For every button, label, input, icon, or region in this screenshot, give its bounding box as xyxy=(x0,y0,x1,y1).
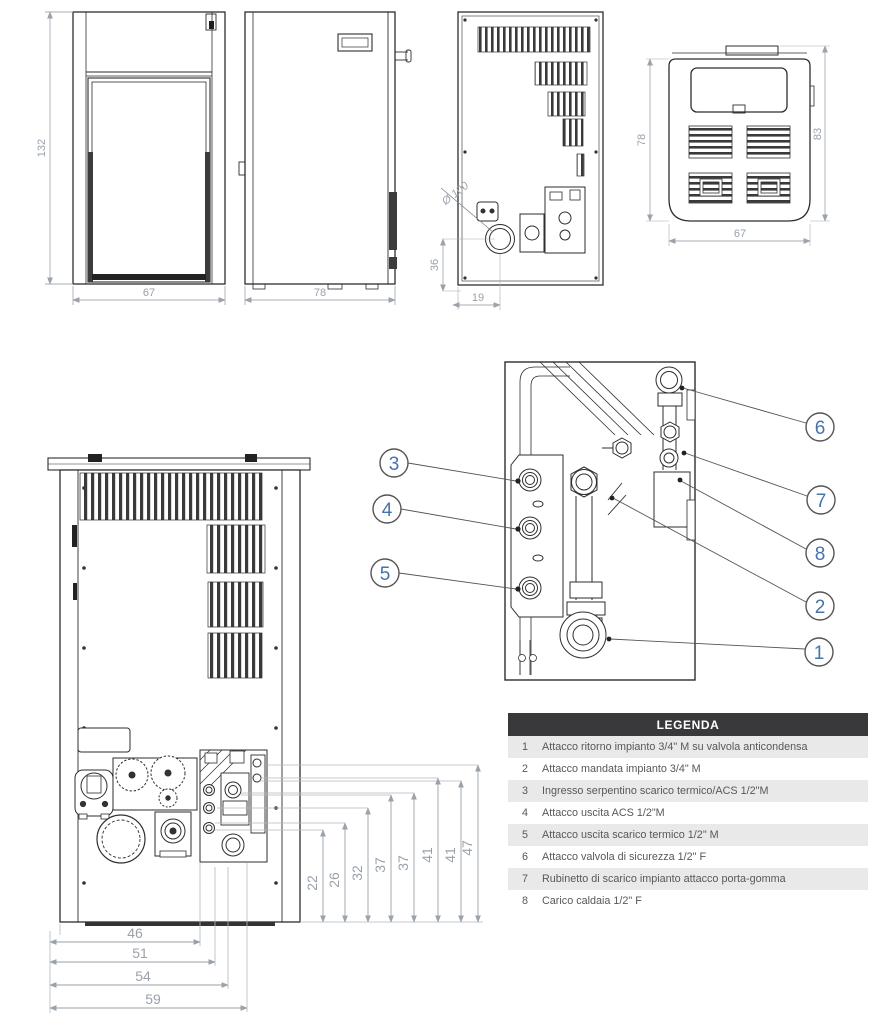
svg-text:51: 51 xyxy=(132,945,148,961)
svg-text:1: 1 xyxy=(814,643,825,664)
legend-row-4: 4 Attacco uscita ACS 1/2"M xyxy=(508,802,868,824)
legend-item-number: 3 xyxy=(508,784,542,798)
vertical-dimensions xyxy=(323,765,478,922)
auger-motor xyxy=(155,812,191,857)
top-view: 78 83 67 xyxy=(640,26,873,271)
callout-7: 7 xyxy=(682,451,835,514)
svg-text:26: 26 xyxy=(326,872,342,888)
front-height-dimension xyxy=(45,12,73,284)
vertical-dimension-labels: 22 26 32 37 37 41 41 47 xyxy=(304,840,475,891)
valve-assembly xyxy=(200,750,267,862)
legend-row-5: 5 Attacco uscita scarico termico 1/2" M xyxy=(508,824,868,846)
svg-text:32: 32 xyxy=(349,865,365,881)
rear-dimension-view: 22 26 32 37 37 41 41 47 xyxy=(35,443,485,1024)
legend-title: LEGENDA xyxy=(508,713,868,736)
rear-dimension-drawing: 22 26 32 37 37 41 41 47 xyxy=(35,443,485,1024)
svg-text:46: 46 xyxy=(127,925,143,941)
svg-text:37: 37 xyxy=(395,855,411,871)
back-view-drawing: Ø 100 36 19 xyxy=(425,2,620,320)
front-width-label: 67 xyxy=(143,287,155,299)
legend-row-2: 2 Attacco mandata impianto 3/4" M xyxy=(508,758,868,780)
svg-text:7: 7 xyxy=(816,491,827,512)
side-view-drawing: 78 xyxy=(228,2,413,320)
smoke-outlet xyxy=(97,815,145,863)
legend-item-text: Attacco mandata impianto 3/4" M xyxy=(542,762,860,776)
svg-text:2: 2 xyxy=(815,597,826,618)
legend-item-number: 6 xyxy=(508,850,542,864)
back-view: Ø 100 36 19 xyxy=(425,2,620,320)
svg-text:37: 37 xyxy=(372,857,388,873)
air-intake-pipe xyxy=(395,50,411,62)
side-depth-label: 78 xyxy=(314,287,326,299)
top-depth-dimension xyxy=(646,59,669,221)
legend-item-number: 7 xyxy=(508,872,542,886)
svg-text:22: 22 xyxy=(304,875,320,891)
technical-drawing-page: 132 67 xyxy=(0,0,873,1024)
legend-item-text: Carico caldaia 1/2" F xyxy=(542,894,860,908)
terminal-box xyxy=(477,202,498,221)
front-height-label: 132 xyxy=(36,139,48,157)
legend-table: LEGENDA 1 Attacco ritorno impianto 3/4" … xyxy=(508,713,868,912)
svg-text:41: 41 xyxy=(442,847,458,863)
legend-row-8: 8 Carico caldaia 1/2" F xyxy=(508,890,868,912)
top-view-drawing: 78 83 67 xyxy=(640,26,873,271)
legend-item-text: Rubinetto di scarico impianto attacco po… xyxy=(542,872,860,886)
legend-row-7: 7 Rubinetto di scarico impianto attacco … xyxy=(508,868,868,890)
top-total-depth-label: 83 xyxy=(812,128,824,140)
legend-item-text: Attacco valvola di sicurezza 1/2" F xyxy=(542,850,860,864)
callout-6: 6 xyxy=(680,386,834,441)
rear-protrusion xyxy=(726,46,778,55)
svg-text:59: 59 xyxy=(145,991,161,1007)
svg-text:41: 41 xyxy=(419,847,435,863)
legend-row-1: 1 Attacco ritorno impianto 3/4" M su val… xyxy=(508,736,868,758)
circulation-pump xyxy=(75,770,113,819)
legend-item-text: Attacco uscita scarico termico 1/2" M xyxy=(542,828,860,842)
front-view-drawing: 132 67 xyxy=(30,2,240,320)
legend-item-text: Attacco ritorno impianto 3/4" M su valvo… xyxy=(542,740,860,754)
legend-row-6: 6 Attacco valvola di sicurezza 1/2" F xyxy=(508,846,868,868)
top-depth-label: 78 xyxy=(636,134,648,146)
legend-item-number: 1 xyxy=(508,740,542,754)
side-view: 78 xyxy=(228,2,413,320)
flue-height-label: 36 xyxy=(429,259,441,271)
front-view: 132 67 xyxy=(30,2,240,320)
horizontal-dimension-labels: 46 51 54 59 xyxy=(127,925,161,1007)
svg-text:47: 47 xyxy=(459,840,475,856)
legend-item-text: Attacco uscita ACS 1/2"M xyxy=(542,806,860,820)
legend-item-number: 4 xyxy=(508,806,542,820)
rear-bracket xyxy=(389,192,397,250)
gear-motor xyxy=(113,756,197,810)
svg-text:6: 6 xyxy=(815,418,826,439)
legend-item-text: Ingresso serpentino scarico termico/ACS … xyxy=(542,784,860,798)
legend-row-3: 3 Ingresso serpentino scarico termico/AC… xyxy=(508,780,868,802)
legend-item-number: 2 xyxy=(508,762,542,776)
rating-plate xyxy=(78,728,130,752)
top-cap xyxy=(48,454,310,470)
top-width-label: 67 xyxy=(734,228,746,240)
svg-text:54: 54 xyxy=(135,968,151,984)
svg-text:8: 8 xyxy=(815,544,826,565)
legend-item-number: 8 xyxy=(508,894,542,908)
flue-offset-label: 19 xyxy=(472,292,484,304)
legend-item-number: 5 xyxy=(508,828,542,842)
